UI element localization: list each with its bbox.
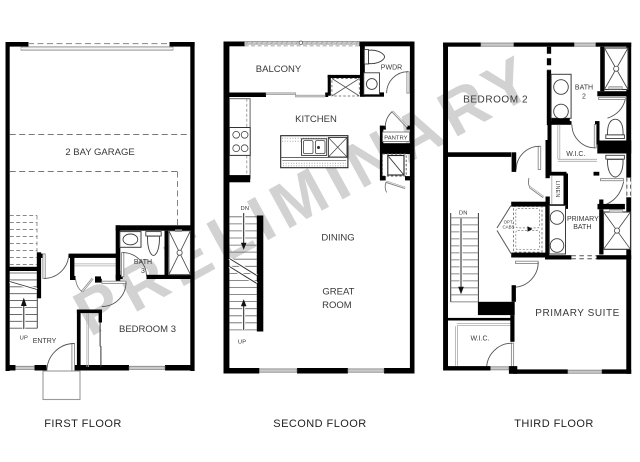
- svg-text:BATH: BATH: [575, 84, 593, 91]
- svg-text:UP: UP: [238, 340, 246, 346]
- svg-text:BATH: BATH: [573, 224, 591, 231]
- svg-text:2 BAY GARAGE: 2 BAY GARAGE: [65, 147, 134, 158]
- svg-text:THIRD FLOOR: THIRD FLOOR: [514, 418, 594, 430]
- svg-text:3: 3: [141, 268, 145, 275]
- svg-text:PWDR: PWDR: [381, 64, 402, 71]
- svg-text:ROOM: ROOM: [322, 300, 352, 311]
- svg-text:PRIMARY SUITE: PRIMARY SUITE: [535, 308, 620, 319]
- svg-text:KITCHEN: KITCHEN: [295, 114, 337, 125]
- svg-text:LINEN: LINEN: [554, 181, 560, 198]
- svg-text:SECOND FLOOR: SECOND FLOOR: [273, 418, 366, 430]
- svg-text:BEDROOM 3: BEDROOM 3: [119, 324, 176, 335]
- svg-text:W.I.C.: W.I.C.: [470, 336, 489, 343]
- svg-text:W.I.C.: W.I.C.: [566, 151, 585, 158]
- svg-text:PRIMARY: PRIMARY: [567, 216, 599, 223]
- svg-text:GREAT: GREAT: [322, 287, 354, 298]
- svg-text:DN: DN: [241, 206, 250, 212]
- svg-text:DN: DN: [459, 210, 468, 216]
- svg-text:CABS: CABS: [503, 224, 515, 229]
- svg-text:BALCONY: BALCONY: [256, 64, 302, 75]
- svg-text:DINING: DINING: [321, 233, 354, 244]
- svg-text:ENTRY: ENTRY: [33, 338, 57, 345]
- svg-text:PANTRY: PANTRY: [384, 136, 407, 142]
- svg-text:UP: UP: [20, 336, 28, 342]
- svg-text:FIRST FLOOR: FIRST FLOOR: [44, 418, 121, 430]
- svg-text:BEDROOM 2: BEDROOM 2: [463, 94, 528, 105]
- svg-text:2: 2: [582, 94, 586, 101]
